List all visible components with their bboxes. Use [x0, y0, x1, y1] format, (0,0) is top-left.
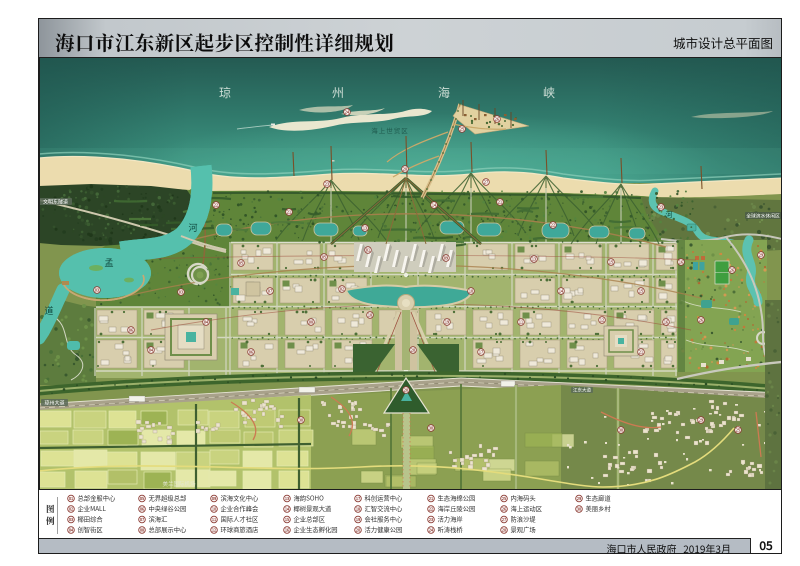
- svg-text:11: 11: [519, 319, 523, 325]
- svg-text:琼: 琼: [219, 84, 231, 101]
- svg-text:21: 21: [498, 199, 502, 205]
- svg-text:活力海岸: 活力海岸: [438, 515, 463, 524]
- svg-text:03: 03: [95, 287, 99, 293]
- svg-text:滨海汇: 滨海汇: [149, 515, 168, 524]
- svg-text:环球商旅酒店: 环球商旅酒店: [221, 525, 259, 534]
- svg-text:企业合作峰会: 企业合作峰会: [221, 504, 259, 513]
- svg-text:美丽乡村: 美丽乡村: [586, 504, 612, 513]
- svg-text:海上世贸区: 海上世贸区: [371, 125, 409, 135]
- svg-text:文明东隧道: 文明东隧道: [43, 199, 68, 206]
- svg-text:海: 海: [438, 84, 450, 101]
- svg-text:15: 15: [639, 288, 643, 294]
- svg-text:汇智交流中心: 汇智交流中心: [365, 504, 403, 513]
- svg-text:21: 21: [287, 209, 291, 215]
- svg-text:23: 23: [659, 204, 663, 210]
- svg-text:01: 01: [69, 496, 73, 502]
- svg-text:13: 13: [363, 225, 367, 231]
- svg-text:孟: 孟: [104, 256, 113, 269]
- svg-text:15: 15: [609, 259, 613, 265]
- svg-text:道: 道: [44, 304, 53, 317]
- svg-text:02: 02: [340, 286, 344, 292]
- svg-text:03: 03: [179, 289, 183, 295]
- svg-text:琼州大道: 琼州大道: [44, 400, 64, 407]
- svg-text:科创运营中心: 科创运营中心: [365, 494, 403, 503]
- svg-text:美兰国际机场: 美兰国际机场: [162, 480, 196, 488]
- svg-text:听涛栈桥: 听涛栈桥: [438, 525, 464, 534]
- svg-text:州: 州: [332, 84, 344, 101]
- svg-text:21: 21: [639, 349, 643, 355]
- svg-text:05: 05: [322, 254, 326, 260]
- svg-text:图: 图: [46, 503, 55, 515]
- svg-text:21: 21: [429, 496, 433, 502]
- svg-text:例: 例: [46, 515, 55, 527]
- svg-text:企业生态孵化园: 企业生态孵化园: [294, 525, 338, 534]
- svg-text:05: 05: [239, 260, 243, 266]
- svg-text:海上运动区: 海上运动区: [511, 504, 542, 513]
- svg-text:22: 22: [551, 222, 555, 228]
- svg-text:活力健康公园: 活力健康公园: [365, 525, 403, 534]
- svg-text:河: 河: [188, 221, 197, 234]
- svg-text:无界超级总部: 无界超级总部: [149, 494, 187, 503]
- svg-text:企业总部区: 企业总部区: [294, 515, 325, 524]
- svg-text:25: 25: [460, 126, 464, 132]
- svg-text:中央绿谷公园: 中央绿谷公园: [149, 504, 187, 513]
- svg-text:景观广场: 景观广场: [511, 525, 536, 534]
- svg-text:企业MALL: 企业MALL: [78, 504, 107, 513]
- svg-text:23: 23: [325, 181, 329, 187]
- svg-text:椰树景观大道: 椰树景观大道: [294, 504, 332, 513]
- svg-text:内海码头: 内海码头: [511, 494, 536, 503]
- svg-text:防浪沙堤: 防浪沙堤: [511, 515, 537, 524]
- svg-text:峡: 峡: [543, 84, 555, 101]
- svg-text:滨海文化中心: 滨海文化中心: [221, 494, 259, 503]
- svg-text:国际人才社区: 国际人才社区: [221, 515, 259, 524]
- svg-text:生态海绵公园: 生态海绵公园: [438, 494, 476, 503]
- svg-text:13: 13: [532, 256, 536, 262]
- svg-text:29: 29: [699, 417, 703, 423]
- svg-text:椰田综合: 椰田综合: [78, 515, 104, 524]
- svg-text:河: 河: [666, 210, 673, 220]
- svg-text:江东大道: 江东大道: [573, 387, 591, 394]
- svg-text:09: 09: [444, 255, 448, 261]
- svg-text:会社服务中心: 会社服务中心: [365, 515, 403, 524]
- svg-text:创智街区: 创智街区: [78, 525, 103, 534]
- svg-text:海韵SOHO: 海韵SOHO: [294, 494, 325, 503]
- svg-text:19: 19: [445, 319, 449, 325]
- svg-text:22: 22: [214, 202, 218, 208]
- svg-text:25: 25: [736, 427, 740, 433]
- svg-text:全球滨水休闲区: 全球滨水休闲区: [746, 213, 780, 220]
- svg-text:01: 01: [366, 247, 370, 253]
- svg-text:总部展示中心: 总部展示中心: [149, 525, 187, 534]
- svg-text:29: 29: [759, 252, 763, 258]
- svg-text:总部金服中心: 总部金服中心: [78, 494, 116, 503]
- svg-text:生态廊道: 生态廊道: [586, 494, 612, 503]
- svg-text:12: 12: [600, 317, 604, 323]
- svg-text:11: 11: [212, 517, 216, 523]
- svg-text:海岸丘陵公园: 海岸丘陵公园: [438, 504, 476, 513]
